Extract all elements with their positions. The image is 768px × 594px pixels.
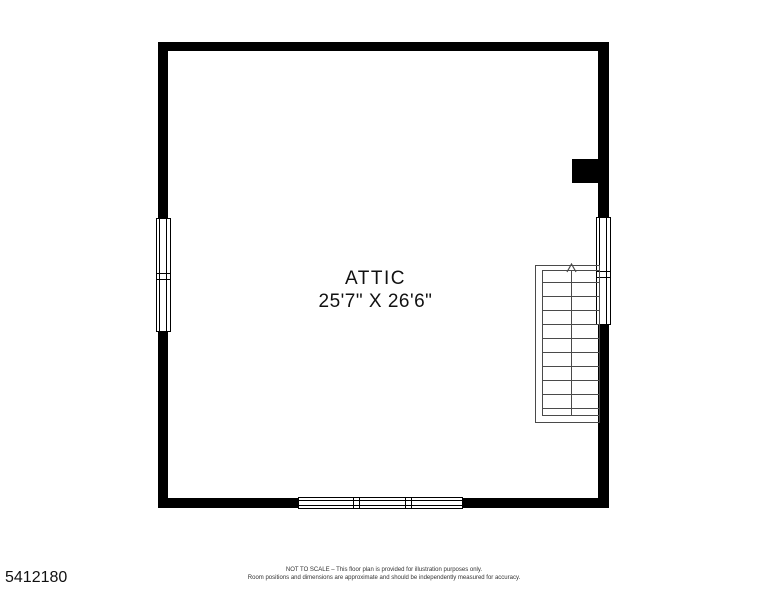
window-sash-divider <box>157 279 170 280</box>
wall-top <box>158 42 609 51</box>
window-mullion <box>353 498 354 508</box>
chimney <box>572 159 599 183</box>
window-bottom <box>298 497 463 509</box>
listing-id: 5412180 <box>5 569 67 587</box>
window-frame-line <box>299 505 462 506</box>
room-dimensions: 25'7" X 26'6" <box>258 291 493 313</box>
floor-plan-page: ATTIC 25'7" X 26'6" 5412180 NOT TO SCALE… <box>0 0 768 594</box>
window-mullion <box>411 498 412 508</box>
stair-centerline <box>571 270 572 416</box>
window-mullion <box>405 498 406 508</box>
window-left <box>156 218 171 332</box>
disclaimer-line2: Room positions and dimensions are approx… <box>184 574 584 582</box>
staircase <box>535 265 600 423</box>
window-mullion <box>359 498 360 508</box>
window-frame-line <box>159 219 160 331</box>
window-frame-line <box>299 500 462 501</box>
disclaimer-line1: NOT TO SCALE – This floor plan is provid… <box>184 566 584 574</box>
room-name: ATTIC <box>258 268 493 289</box>
up-arrow-icon <box>565 263 578 273</box>
room-label: ATTIC 25'7" X 26'6" <box>258 268 493 313</box>
window-frame-line <box>166 219 167 331</box>
window-sash-divider <box>157 273 170 274</box>
disclaimer: NOT TO SCALE – This floor plan is provid… <box>184 566 584 582</box>
attic-floor-plan: ATTIC 25'7" X 26'6" <box>0 0 768 594</box>
